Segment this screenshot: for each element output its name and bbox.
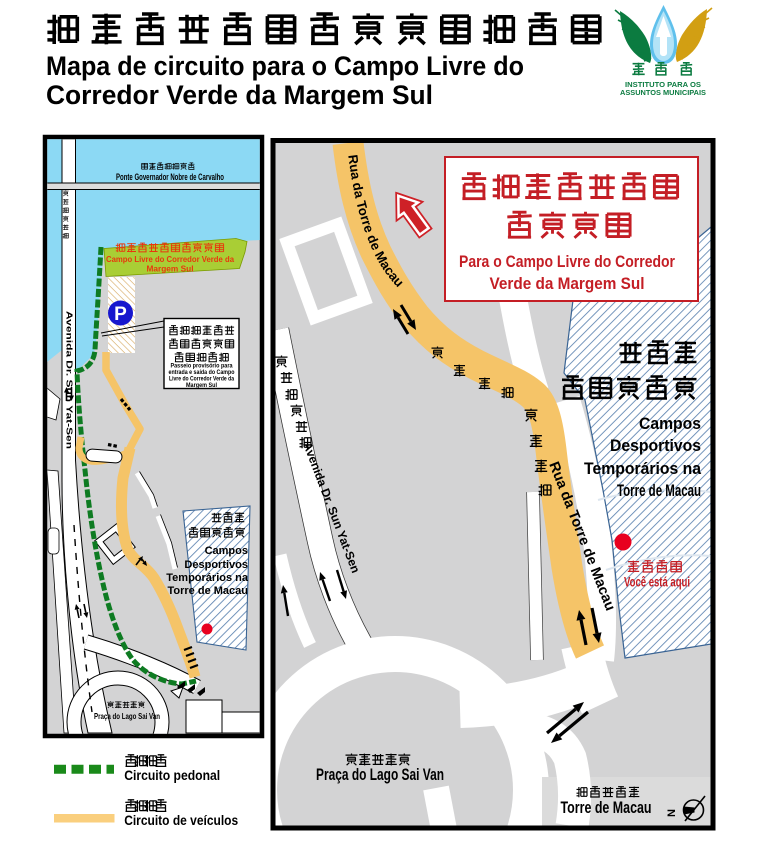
svg-text:Desportivos: Desportivos (184, 559, 248, 571)
svg-text:Mapa de circuito para o Campo: Mapa de circuito para o Campo Livre do (46, 51, 524, 81)
svg-text:Corredor Verde da Margem Sul: Corredor Verde da Margem Sul (46, 80, 433, 110)
svg-text:Circuito de veículos: Circuito de veículos (124, 812, 238, 828)
svg-text:Torre de Macau: Torre de Macau (168, 585, 249, 597)
svg-text:Torre de Macau: Torre de Macau (561, 799, 652, 817)
svg-text:Campo Livre do Corredor Verde: Campo Livre do Corredor Verde da (106, 254, 234, 264)
svg-text:Desportivos: Desportivos (610, 436, 701, 455)
svg-text:Margem Sul: Margem Sul (186, 382, 217, 389)
svg-text:ASSUNTOS MUNICIPAIS: ASSUNTOS MUNICIPAIS (620, 90, 706, 97)
svg-text:Campos: Campos (205, 545, 248, 557)
svg-text:P: P (114, 304, 127, 325)
svg-text:Verde da Margem Sul: Verde da Margem Sul (490, 274, 645, 293)
svg-text:Para o Campo Livre do Corredor: Para o Campo Livre do Corredor (459, 252, 675, 271)
svg-text:Temporários na: Temporários na (584, 459, 701, 478)
svg-text:N: N (666, 809, 678, 817)
svg-text:INSTITUTO PARA OS: INSTITUTO PARA OS (625, 82, 701, 89)
svg-text:Temporários na: Temporários na (166, 572, 249, 584)
svg-text:Praça do Lago Sai Van: Praça do Lago Sai Van (316, 766, 444, 784)
svg-text:Torre de Macau: Torre de Macau (617, 481, 701, 500)
svg-text:Praça do Lago Sai Van: Praça do Lago Sai Van (94, 711, 160, 721)
svg-text:Campos: Campos (639, 414, 701, 433)
svg-text:Avenida Dr. Sun Yat-Sen: Avenida Dr. Sun Yat-Sen (65, 311, 75, 449)
svg-text:Margem Sul: Margem Sul (146, 264, 193, 274)
svg-text:Circuito pedonal: Circuito pedonal (124, 767, 220, 783)
svg-text:Você está aqui: Você está aqui (624, 575, 690, 590)
svg-text:Ponte Governador Nobre de Carv: Ponte Governador Nobre de Carvalho (116, 172, 224, 182)
